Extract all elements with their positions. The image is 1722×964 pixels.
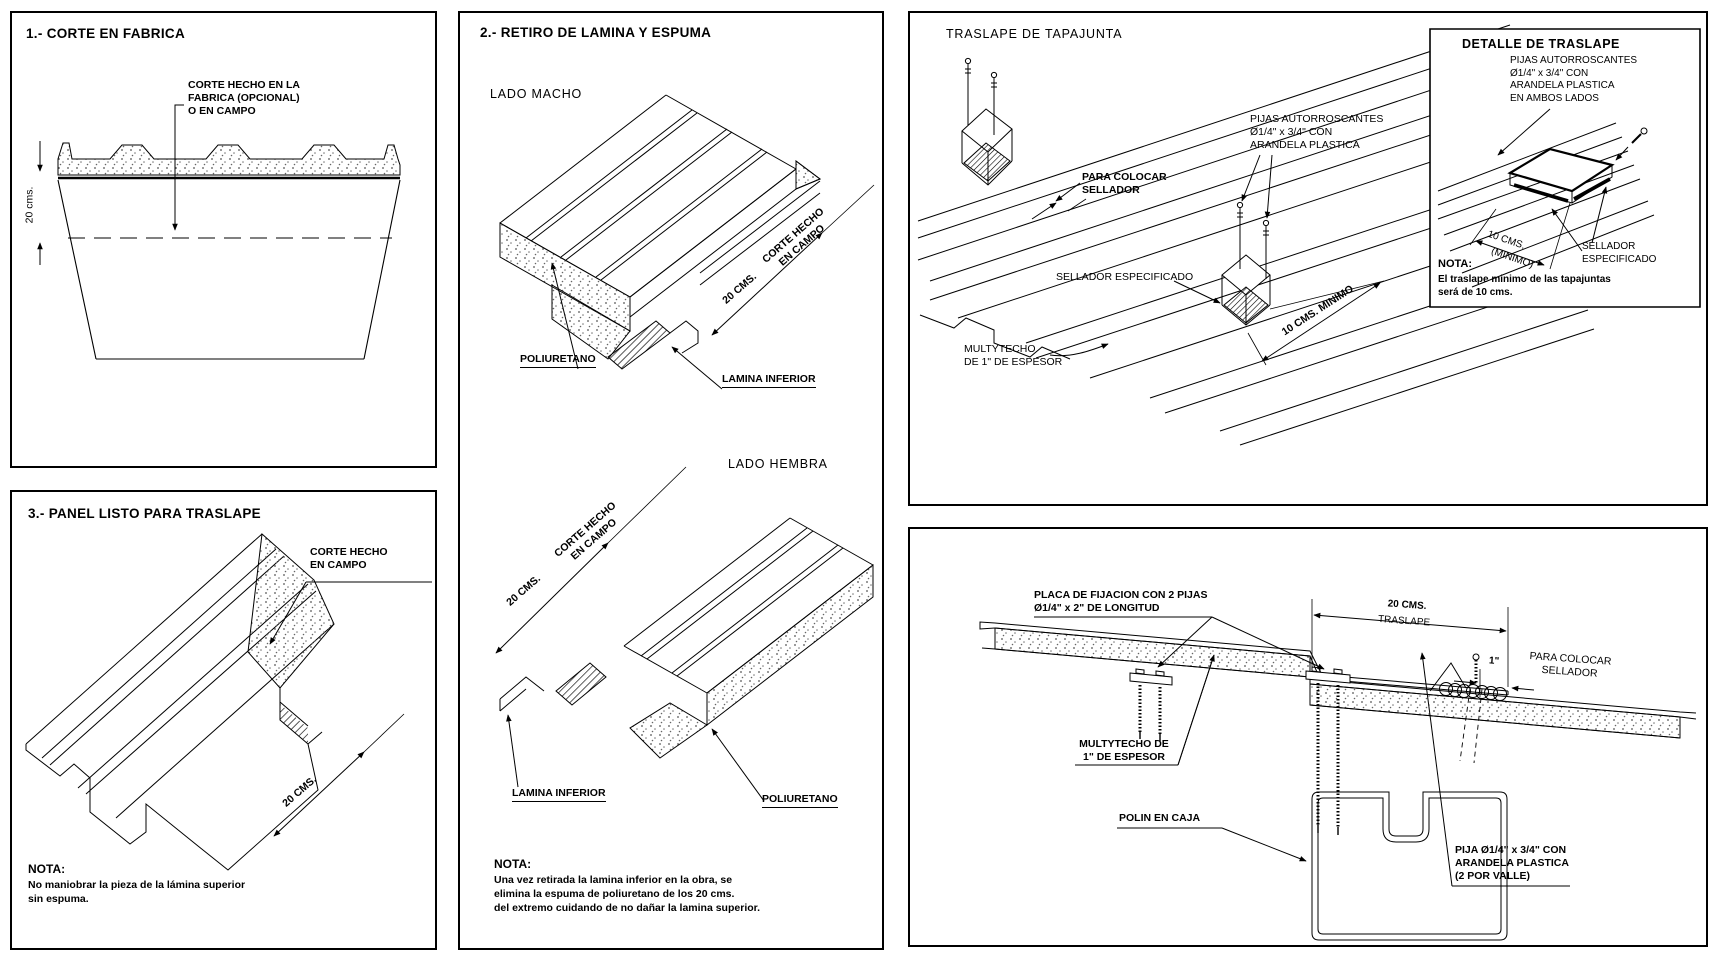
fijacion-drawing (910, 529, 1706, 945)
lado-hembra-drawing (496, 467, 873, 801)
pija-leader (1422, 653, 1452, 886)
upper-panel-section (980, 622, 1508, 695)
tapajunta-cap-1 (962, 58, 1012, 185)
corte-hecho-campo-callout: CORTE HECHO EN CAMPO (310, 546, 388, 572)
para-colocar-sellador-label: PARA COLOCAR SELLADOR (1082, 171, 1167, 197)
dim-20cms-label: 20 CMS. (1387, 598, 1427, 613)
dim-10cms-line (1262, 283, 1380, 361)
para-colocar-sellador-label: PARA COLOCAR SELLADOR (1528, 650, 1612, 682)
lado-macho-drawing (500, 95, 874, 389)
panel-retiro-lamina-espuma: 2.- RETIRO DE LAMINA Y ESPUMA LADO MACHO… (458, 11, 884, 950)
drawing-sheet: 1.- CORTE EN FABRICA CORTE HECHO EN LA F… (0, 0, 1722, 964)
detalle-note-title: NOTA: (1438, 258, 1472, 272)
lado-macho-label: LADO MACHO (490, 87, 582, 103)
lamina-inferior-label2: LAMINA INFERIOR (512, 787, 606, 802)
poliuretano-label: POLIURETANO (520, 353, 596, 368)
panel3-title: 2.- RETIRO DE LAMINA Y ESPUMA (480, 25, 711, 42)
sellador-arrow-2 (1032, 203, 1056, 219)
detalle-pijas-label: PIJAS AUTORROSCANTES Ø1/4" x 3/4" CON AR… (1510, 55, 1637, 105)
note-body: Una vez retirada la lamina inferior en l… (494, 874, 760, 916)
note-body: No maniobrar la pieza de la lámina super… (28, 879, 245, 907)
panel4-title: TRASLAPE DE TAPAJUNTA (946, 27, 1122, 43)
sellador-arrow-1 (1056, 183, 1080, 201)
pijas-autorroscantes-label: PIJAS AUTORROSCANTES Ø1/4" x 3/4" CON AR… (1250, 113, 1383, 152)
detalle-sellador-label: SELLADOR ESPECIFICADO (1582, 241, 1656, 266)
dim-1in-label: 1" (1488, 655, 1499, 668)
front-profile (26, 744, 318, 870)
panel-section-foam (58, 143, 400, 175)
pija-arandela-label: PIJA Ø1/4" x 3/4" CON ARANDELA PLASTICA … (1455, 844, 1569, 883)
panel2-title: 3.- PANEL LISTO PARA TRASLAPE (28, 506, 261, 523)
panel-body-outline (58, 180, 400, 359)
dim-20cms-label: 20 cms. (23, 187, 36, 224)
placa-fijacion-label: PLACA DE FIJACION CON 2 PIJAS Ø1/4" x 2"… (1034, 589, 1207, 615)
polin-en-caja-label: POLIN EN CAJA (1119, 812, 1200, 825)
poliuretano-label2: POLIURETANO (762, 793, 838, 808)
polin-leader (1222, 828, 1306, 861)
panel-traslape-tapajunta: TRASLAPE DE TAPAJUNTA PIJAS AUTORROSCANT… (908, 11, 1708, 506)
pijas-leader-2 (1267, 155, 1272, 218)
multytecho-label: MULTYTECHO DE 1" DE ESPESOR (1070, 738, 1178, 764)
lado-hembra-label: LADO HEMBRA (728, 457, 828, 473)
dim-1in-arrow-right (1512, 688, 1534, 690)
multytecho-label: MULTYTECHO DE 1" DE ESPESOR (964, 343, 1062, 369)
panel-detalle-fijacion: PLACA DE FIJACION CON 2 PIJAS Ø1/4" x 2"… (908, 527, 1708, 947)
panel-listo-para-traslape: 3.- PANEL LISTO PARA TRASLAPE CORTE HECH… (10, 490, 437, 950)
dim-1in-arrow-left (1454, 681, 1476, 683)
dim-extension (364, 714, 404, 752)
detalle-note-body: El traslape minimo de las tapajuntas ser… (1438, 273, 1611, 299)
sellador-especificado-label: SELLADOR ESPECIFICADO (1056, 271, 1193, 284)
lamina-inferior-label: LAMINA INFERIOR (722, 373, 816, 388)
note-title: NOTA: (494, 857, 531, 872)
detalle-title: DETALLE DE TRASLAPE (1462, 37, 1620, 53)
tapajunta-cap-2 (1222, 202, 1270, 325)
corte-hecho-fabrica-callout: CORTE HECHO EN LA FABRICA (OPCIONAL) O E… (188, 79, 300, 118)
fixation-plate-a (1130, 669, 1172, 741)
panel-corte-en-fabrica: 1.- CORTE EN FABRICA CORTE HECHO EN LA F… (10, 11, 437, 468)
note-title: NOTA: (28, 862, 65, 877)
panel1-title: 1.- CORTE EN FABRICA (26, 26, 185, 43)
